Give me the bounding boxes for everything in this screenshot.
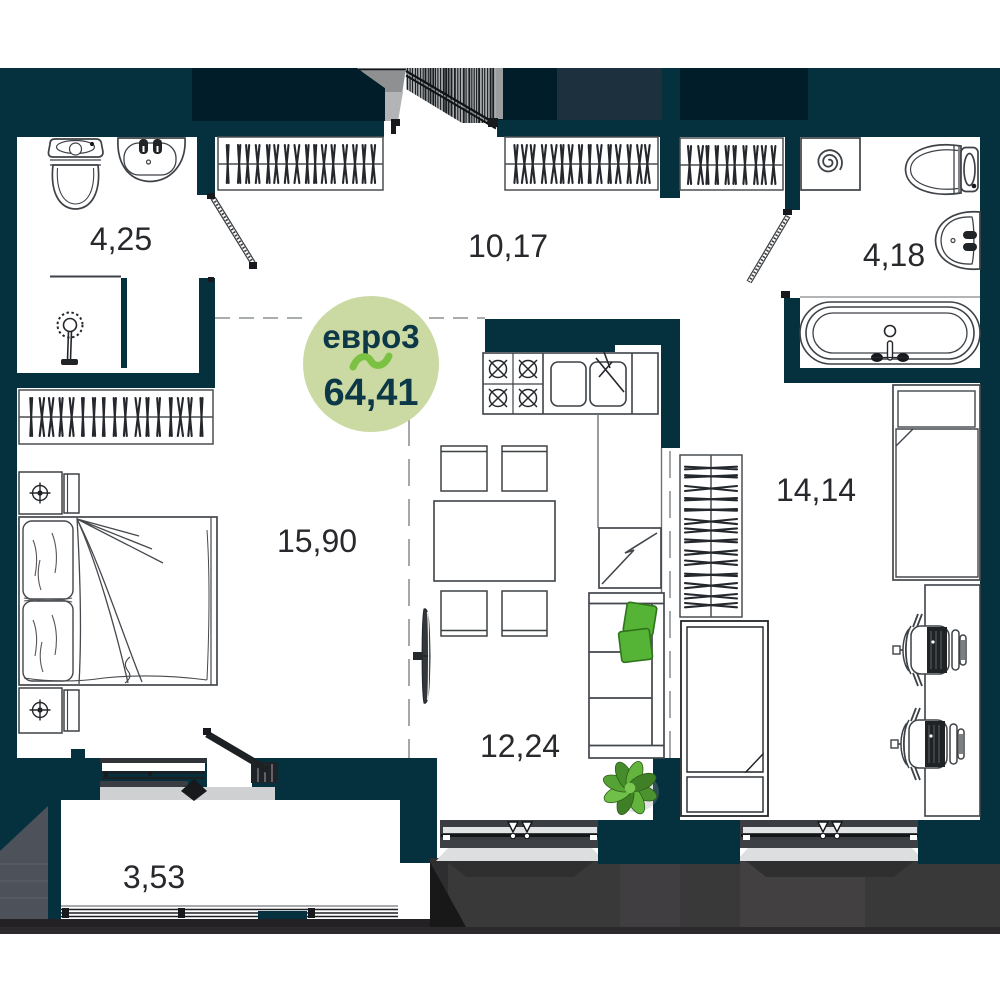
svg-text:4,25: 4,25	[90, 221, 152, 257]
svg-text:евро3: евро3	[322, 318, 419, 355]
svg-text:3,53: 3,53	[123, 859, 185, 895]
svg-text:4,18: 4,18	[863, 237, 925, 273]
svg-text:14,14: 14,14	[776, 472, 856, 508]
svg-text:15,90: 15,90	[277, 523, 357, 559]
svg-text:64,41: 64,41	[323, 372, 418, 414]
svg-text:10,17: 10,17	[468, 228, 548, 264]
svg-text:12,24: 12,24	[480, 728, 560, 764]
